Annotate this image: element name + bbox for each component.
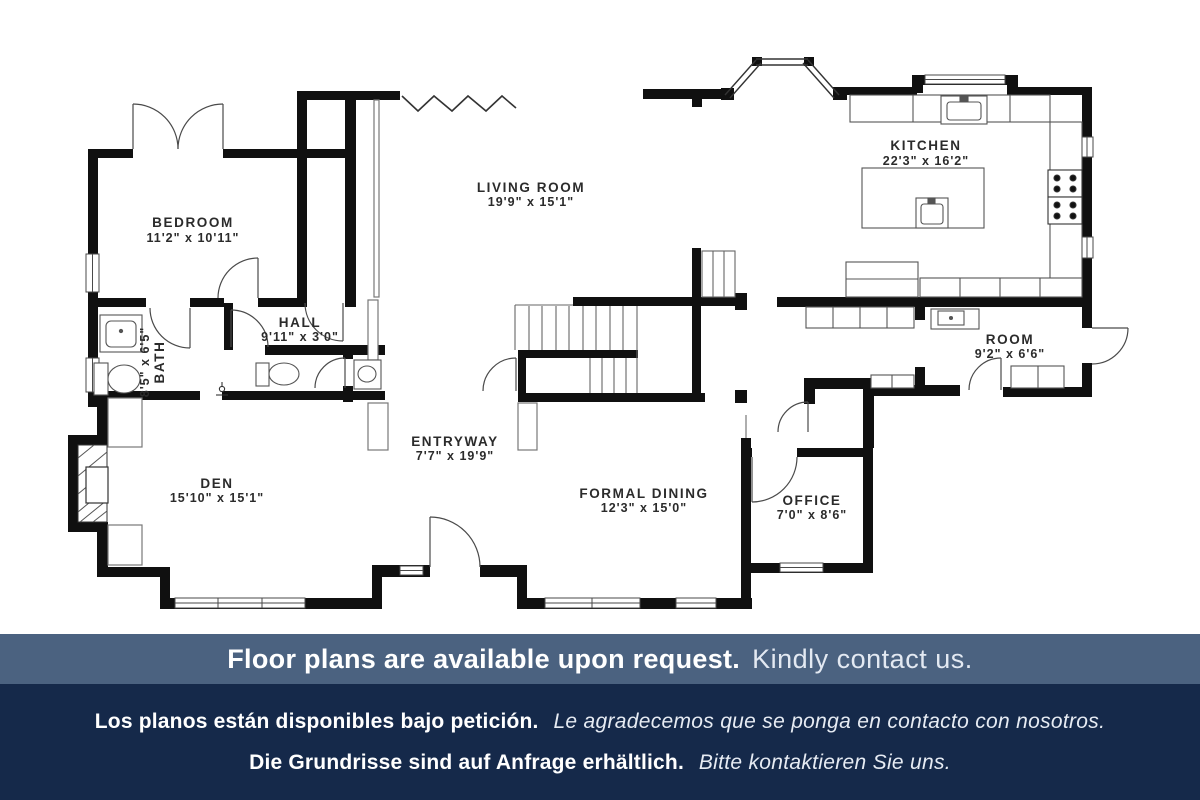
banner-spanish-italic: Le agradecemos que se ponga en contacto … <box>553 710 1105 733</box>
door-stair-hall <box>483 358 516 391</box>
svg-text:LIVING ROOM: LIVING ROOM <box>477 180 585 195</box>
door-room-exterior <box>1092 328 1128 364</box>
mudroom-bench <box>1011 366 1064 388</box>
room-label-room: ROOM 9'2" x 6'6" <box>975 332 1046 361</box>
door-bedroom-entry <box>218 258 258 298</box>
svg-text:KITCHEN: KITCHEN <box>890 138 961 153</box>
banner-request-bold: Floor plans are available upon request. <box>227 644 740 675</box>
banner-request: Floor plans are available upon request. … <box>0 634 1200 684</box>
room-label-kitchen: KITCHEN 22'3" x 16'2" <box>883 138 969 168</box>
window-dining-bottom-1 <box>545 598 640 608</box>
room-label-office: OFFICE 7'0" x 8'6" <box>777 493 848 522</box>
room-label-den: DEN 15'10" x 15'1" <box>170 476 264 505</box>
svg-text:19'9" x 15'1": 19'9" x 15'1" <box>488 195 574 209</box>
window-kitchen-right-1 <box>1081 137 1093 157</box>
room-label-hall: HALL 9'11" x 3'0" <box>261 315 339 344</box>
room-label-entryway: ENTRYWAY 7'7" x 19'9" <box>411 434 499 463</box>
svg-text:15'10" x 15'1": 15'10" x 15'1" <box>170 491 264 505</box>
svg-text:8'5" x 6'5": 8'5" x 6'5" <box>138 327 152 398</box>
room-label-formal-dining: FORMAL DINING 12'3" x 15'0" <box>579 486 708 515</box>
room-label-bedroom: BEDROOM 11'2" x 10'11" <box>147 215 240 245</box>
banner-spanish: Los planos están disponibles bajo petici… <box>95 710 1105 734</box>
svg-text:HALL: HALL <box>279 315 321 330</box>
svg-text:ROOM: ROOM <box>986 332 1034 347</box>
room-label-living-room: LIVING ROOM 19'9" x 15'1" <box>477 180 585 209</box>
svg-text:OFFICE: OFFICE <box>782 493 841 508</box>
svg-text:9'2" x 6'6": 9'2" x 6'6" <box>975 347 1046 361</box>
window-office-bottom <box>780 563 823 572</box>
svg-text:11'2" x 10'11": 11'2" x 10'11" <box>147 231 240 245</box>
wc-toilet <box>256 363 299 386</box>
svg-text:12'3" x 15'0": 12'3" x 15'0" <box>601 501 687 515</box>
screenshot-frame: BEDROOM 11'2" x 10'11" LIVING ROOM 19'9"… <box>0 0 1200 800</box>
svg-text:FORMAL DINING: FORMAL DINING <box>579 486 708 501</box>
mudroom-cabinet <box>871 375 914 388</box>
firebox <box>86 467 108 503</box>
window-entry-front <box>400 566 423 575</box>
banner-german: Die Grundrisse sind auf Anfrage erhältli… <box>249 751 951 775</box>
kitchen-peninsula <box>846 262 918 297</box>
window-den-bottom <box>175 598 305 608</box>
door-wc-right <box>315 358 345 388</box>
window-dining-bottom-2 <box>676 598 716 608</box>
island-sink <box>916 198 948 228</box>
double-door-bedroom <box>133 104 223 149</box>
zigzag-opening-symbol <box>402 96 516 111</box>
svg-text:BATH: BATH <box>152 341 167 384</box>
backhall-cabinets <box>806 307 914 328</box>
banner-german-bold: Die Grundrisse sind auf Anfrage erhältli… <box>249 751 684 774</box>
svg-text:7'7" x 19'9": 7'7" x 19'9" <box>416 449 494 463</box>
mudroom-sink <box>931 309 979 329</box>
door-vestibule <box>778 402 808 432</box>
window-kitchen-right-2 <box>1081 237 1093 258</box>
banner-translations: Los planos están disponibles bajo petici… <box>0 684 1200 800</box>
bay-window <box>725 59 839 98</box>
svg-text:9'11" x 3'0": 9'11" x 3'0" <box>261 330 339 344</box>
door-room-bottom <box>969 358 1001 390</box>
bath-vanity <box>100 315 142 352</box>
fireplace <box>78 445 108 522</box>
window-bedroom-left <box>86 254 99 292</box>
door-front-entry <box>430 517 480 567</box>
svg-text:22'3" x 16'2": 22'3" x 16'2" <box>883 154 969 168</box>
svg-text:ENTRYWAY: ENTRYWAY <box>411 434 499 449</box>
banner-request-regular: Kindly contact us. <box>752 644 973 675</box>
svg-text:BEDROOM: BEDROOM <box>152 215 234 230</box>
banner-german-italic: Bitte kontaktieren Sie uns. <box>699 751 951 774</box>
nook-vanity <box>354 360 381 389</box>
bath-toilet <box>94 363 140 395</box>
staircase <box>515 251 735 393</box>
kitchen-sink-top <box>941 96 987 124</box>
banner-spanish-bold: Los planos están disponibles bajo petici… <box>95 710 539 733</box>
floor-plan: BEDROOM 11'2" x 10'11" LIVING ROOM 19'9"… <box>0 0 1200 634</box>
window-kitchen-top <box>925 75 1005 84</box>
svg-text:DEN: DEN <box>200 476 233 491</box>
kitchen-stove <box>1048 170 1082 224</box>
kitchen-counter-bottom <box>920 278 1082 297</box>
svg-text:7'0" x 8'6": 7'0" x 8'6" <box>777 508 848 522</box>
